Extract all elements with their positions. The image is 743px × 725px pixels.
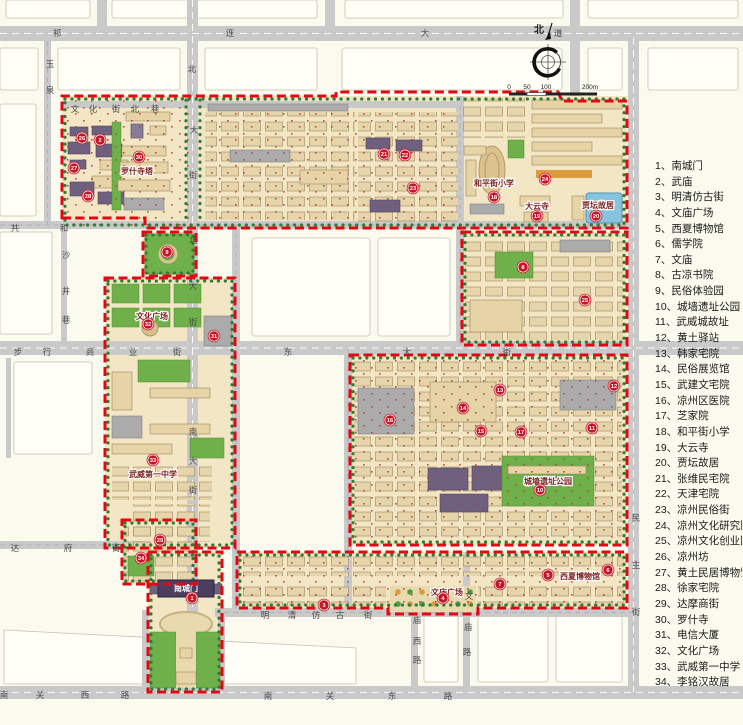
street-label-char: 西 [81, 690, 90, 700]
street-label-char: 南 [264, 691, 273, 701]
street-label-char: 南 [0, 690, 8, 700]
legend-item: 7、文庙 [655, 253, 742, 269]
street-label-char: 祁 [53, 28, 62, 38]
street-label-char: 商 [86, 347, 95, 357]
street-label-char: 玉 [46, 59, 55, 69]
legend-item: 18、和平街小学 [655, 425, 742, 441]
map-marker-6: 6 [602, 564, 615, 577]
street-label-char: 庙 [464, 622, 473, 632]
map-marker-15: 15 [475, 425, 488, 438]
street-label-char: 仿 [312, 610, 321, 620]
marker-number: 18 [491, 195, 498, 201]
marker-number: 20 [593, 214, 599, 220]
site-label: 城墙遗址公园 [524, 476, 572, 486]
site-label: 大云寺 [525, 201, 549, 211]
map-marker-32: 32 [142, 318, 155, 331]
street-label-char: 街 [364, 610, 373, 620]
marker-number: 33 [150, 458, 157, 464]
site-label: 罗什寺塔 [121, 166, 154, 176]
street-label-char: 街 [112, 104, 121, 114]
legend-list: 1、南城门2、武庙3、明清仿古街4、文庙广场5、西夏博物馆6、儒学院7、文庙8、… [655, 159, 742, 691]
map-marker-13: 13 [494, 384, 507, 397]
legend-item: 5、西夏博物馆 [655, 222, 742, 238]
street-label-char: 大 [190, 125, 199, 135]
marker-number: 11 [589, 426, 596, 432]
marker-number: 29 [157, 538, 164, 544]
map-marker-21: 21 [378, 148, 391, 161]
map-canvas: 南城门 祁连大道共和步行商业街东大街文化街北巷北大街北大街南大街玉泉沙井巷民主街… [0, 0, 743, 725]
scale-tick-label: 200m [582, 84, 598, 91]
street-label-char: 共 [11, 223, 20, 233]
scale-tick-label: 0 [507, 84, 511, 91]
legend-item: 23、凉州民俗街 [655, 503, 742, 519]
map-marker-8: 8 [517, 261, 530, 274]
street-label-char: 文 [71, 104, 80, 114]
street-label-char: 路 [463, 647, 472, 657]
marker-number: 34 [138, 556, 145, 562]
street-label-char: 道 [554, 28, 563, 38]
street-label-char: 西 [413, 636, 422, 646]
map-marker-17: 17 [515, 426, 528, 439]
street-label-char: 东 [388, 691, 397, 701]
map-marker-7: 7 [494, 578, 507, 591]
south-gate: 南城门 [150, 580, 222, 597]
street-label-char: 关 [326, 691, 335, 701]
street-label-char: 北 [131, 104, 140, 114]
marker-number: 19 [534, 214, 541, 220]
map-marker-19: 19 [531, 210, 544, 223]
street-label-char: 文 [465, 591, 474, 601]
street-label-char: 街 [503, 347, 512, 357]
planning-map: 南城门 祁连大道共和步行商业街东大街文化街北巷北大街北大街南大街玉泉沙井巷民主街… [0, 0, 743, 725]
street-label-char: 连 [226, 28, 235, 38]
street-label-char: 大 [189, 456, 198, 466]
map-marker-27: 27 [68, 162, 81, 175]
map-marker-33: 33 [147, 454, 160, 467]
site-label: 武威第一中学 [129, 469, 177, 479]
street-label-char: 南 [189, 427, 198, 437]
map-marker-3: 3 [318, 599, 331, 612]
map-marker-16: 16 [384, 414, 397, 427]
street-label-char: 民 [632, 513, 641, 523]
legend-item: 1、南城门 [655, 159, 742, 175]
street-label-char: 北 [189, 235, 198, 245]
legend-item: 3、明清仿古街 [655, 190, 742, 206]
street-label-char: 府 [64, 543, 73, 553]
legend-item: 16、凉州区医院 [655, 394, 742, 410]
legend-item: 32、文化广场 [655, 644, 742, 660]
legend-item: 17、芝家院 [655, 409, 742, 425]
map-marker-12: 12 [608, 380, 621, 393]
legend-item: 34、李铭汉故居 [655, 675, 742, 691]
street-label-char: 步 [14, 347, 23, 357]
map-marker-34: 34 [135, 552, 148, 565]
legend-item: 9、民俗体验园 [655, 284, 742, 300]
marker-number: 22 [402, 153, 408, 159]
legend-item: 29、达摩商街 [655, 597, 742, 613]
marker-number: 12 [611, 384, 617, 390]
street-label-char: 街 [189, 485, 198, 495]
legend-item: 30、罗什寺 [655, 613, 742, 629]
site-label: 贾坛故居 [582, 200, 614, 210]
legend-panel: 1、南城门2、武庙3、明清仿古街4、文庙广场5、西夏博物馆6、儒学院7、文庙8、… [655, 159, 742, 699]
street-label-char: 路 [413, 655, 422, 665]
street-label-char: 巷 [151, 104, 160, 114]
legend-item: 21、张维民宅院 [655, 472, 742, 488]
map-marker-9: 9 [161, 246, 174, 259]
street-label-char: 业 [129, 347, 138, 357]
street-label-char: 街 [189, 317, 198, 327]
map-marker-1: 1 [186, 592, 199, 605]
map-marker-26: 26 [76, 132, 89, 145]
marker-number: 17 [518, 430, 524, 436]
street-label-char: 行 [43, 347, 52, 357]
marker-number: 21 [381, 152, 388, 158]
marker-number: 15 [478, 429, 485, 435]
site-label: 和平街小学 [474, 178, 514, 188]
street-label-char: 关 [36, 690, 45, 700]
legend-item: 27、黄土民居博物馆 [655, 566, 742, 582]
marker-number: 10 [537, 488, 543, 494]
marker-number: 32 [145, 322, 151, 328]
legend-item: 26、凉州坊 [655, 550, 742, 566]
north-label: 北 [534, 23, 544, 36]
marker-number: 14 [460, 406, 467, 412]
street-label-char: 路 [121, 690, 130, 700]
street-label-char: 古 [336, 610, 345, 620]
map-marker-24: 24 [539, 173, 552, 186]
street-label-char: 清 [288, 610, 297, 620]
legend-item: 10、城墙遗址公园 [655, 300, 742, 316]
legend-item: 13、韩家宅院 [655, 347, 742, 363]
legend-item: 4、文庙广场 [655, 206, 742, 222]
map-marker-30: 30 [133, 151, 146, 164]
marker-number: 24 [542, 177, 549, 183]
legend-item: 19、大云寺 [655, 441, 742, 457]
marker-number: 7 [498, 582, 501, 588]
map-marker-14: 14 [457, 402, 470, 415]
street-label-char: 北 [188, 64, 197, 74]
street-label-char: 街 [112, 543, 121, 553]
legend-item: 12、黄土驿站 [655, 331, 742, 347]
map-marker-2: 2 [94, 134, 107, 147]
marker-number: 31 [211, 334, 218, 340]
legend-item: 6、儒学院 [655, 237, 742, 253]
legend-item: 11、武威城故址 [655, 315, 742, 331]
street-label-char: 井 [62, 286, 71, 296]
legend-item: 20、贾坛故居 [655, 456, 742, 472]
legend-item: 25、凉州文化创业园 [655, 534, 742, 550]
marker-number: 16 [387, 418, 394, 424]
marker-number: 2 [98, 138, 101, 144]
legend-item: 14、民俗展览馆 [655, 362, 742, 378]
legend-item: 8、古凉书院 [655, 268, 742, 284]
legend-item: 2、武庙 [655, 175, 742, 191]
marker-number: 26 [79, 136, 86, 142]
street-label-char: 沙 [62, 250, 71, 260]
street-label-char: 街 [173, 347, 182, 357]
legend-item: 22、天津宅院 [655, 487, 742, 503]
map-marker-10: 10 [534, 484, 547, 497]
map-marker-31: 31 [208, 330, 221, 343]
legend-item: 24、凉州文化研究院 [655, 519, 742, 535]
street-label-char: 路 [444, 691, 453, 701]
map-marker-11: 11 [586, 422, 599, 435]
street-label-char: 巷 [62, 315, 71, 325]
street-label-char: 街 [632, 607, 641, 617]
marker-number: 28 [85, 194, 92, 200]
map-marker-28: 28 [82, 190, 95, 203]
street-label-char: 大 [421, 28, 430, 38]
legend-item: 15、武建文宅院 [655, 378, 742, 394]
scale-tick-label: 100 [541, 84, 552, 91]
street-label-char: 东 [284, 347, 293, 357]
street-label-char: 和 [60, 223, 69, 233]
street-label-char: 明 [261, 610, 270, 620]
map-marker-4: 4 [437, 592, 450, 605]
map-marker-18: 18 [488, 191, 501, 204]
marker-number: 13 [497, 388, 504, 394]
map-marker-5: 5 [542, 569, 555, 582]
map-marker-23: 23 [407, 182, 420, 195]
street-label-char: 达 [11, 543, 20, 553]
marker-number: 23 [410, 186, 417, 192]
street-label-char: 大 [189, 281, 198, 291]
street-label-char: 街 [189, 170, 198, 180]
marker-number: 25 [582, 298, 589, 304]
street-label-char: 泉 [46, 85, 55, 95]
map-marker-22: 22 [399, 149, 412, 162]
map-marker-25: 25 [579, 294, 592, 307]
legend-item: 28、徐家宅院 [655, 581, 742, 597]
marker-number: 27 [71, 166, 77, 172]
scale-tick-label: 50 [523, 84, 531, 91]
street-label-char: 庙 [413, 615, 422, 625]
street-label-char: 化 [89, 104, 98, 114]
street-label-char: 主 [632, 560, 641, 570]
legend-item: 31、电信大厦 [655, 628, 742, 644]
map-marker-20: 20 [590, 210, 603, 223]
legend-item: 33、武威第一中学 [655, 660, 742, 676]
street-label-char: 大 [403, 347, 412, 357]
site-label: 西夏博物馆 [560, 571, 600, 581]
map-marker-29: 29 [154, 534, 167, 547]
marker-number: 30 [136, 155, 142, 161]
